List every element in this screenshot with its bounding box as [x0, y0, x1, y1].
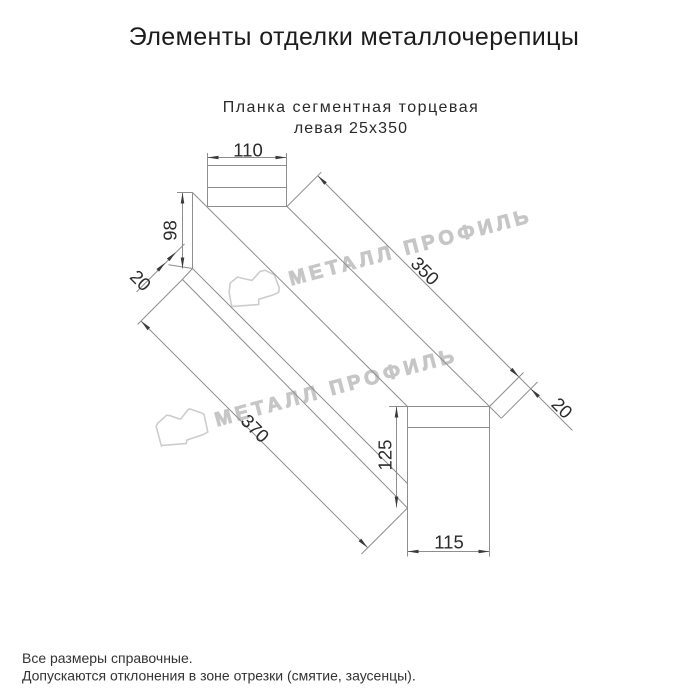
svg-text:98: 98 — [159, 220, 180, 241]
svg-text:125: 125 — [374, 440, 395, 471]
svg-text:Допускаются отклонения в зоне: Допускаются отклонения в зоне отрезки (с… — [22, 668, 416, 684]
svg-text:115: 115 — [434, 532, 464, 553]
svg-text:Элементы отделки металлочерепи: Элементы отделки металлочерепицы — [129, 23, 579, 51]
svg-text:Все размеры справочные.: Все размеры справочные. — [22, 650, 193, 666]
svg-text:левая 25х350: левая 25х350 — [294, 120, 408, 137]
svg-text:Планка сегментная торцевая: Планка сегментная торцевая — [223, 99, 480, 116]
svg-text:110: 110 — [233, 140, 263, 161]
